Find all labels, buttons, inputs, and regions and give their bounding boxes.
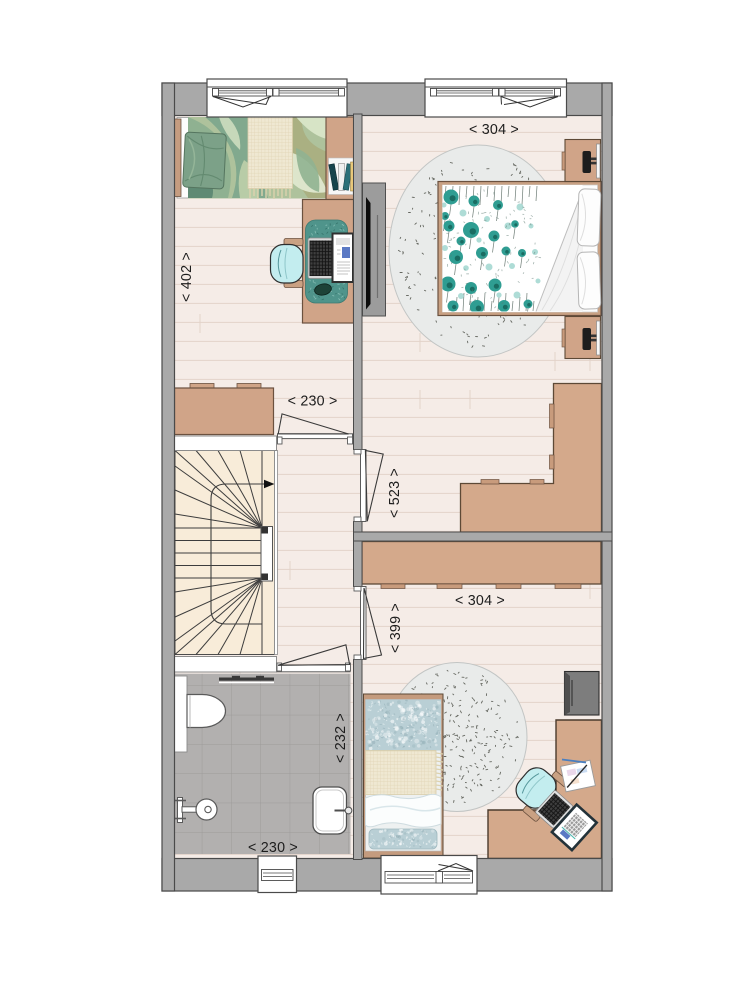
svg-text:< 523 >: < 523 > [387, 468, 403, 518]
svg-text:< 230 >: < 230 > [288, 393, 338, 409]
svg-text:< 304 >: < 304 > [469, 122, 519, 138]
svg-text:< 304 >: < 304 > [455, 593, 505, 609]
svg-text:< 232 >: < 232 > [333, 713, 349, 763]
svg-text:< 230 >: < 230 > [248, 840, 298, 856]
svg-text:< 399 >: < 399 > [388, 603, 404, 653]
svg-text:< 402 >: < 402 > [179, 252, 195, 302]
